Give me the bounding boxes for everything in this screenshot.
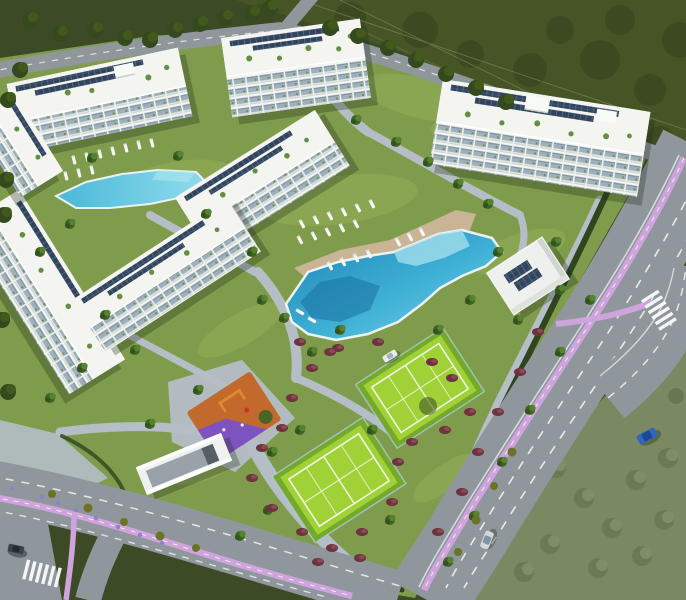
aerial-render xyxy=(0,0,686,600)
tree-shadow-on-court xyxy=(419,397,437,415)
render-canvas xyxy=(0,0,686,600)
